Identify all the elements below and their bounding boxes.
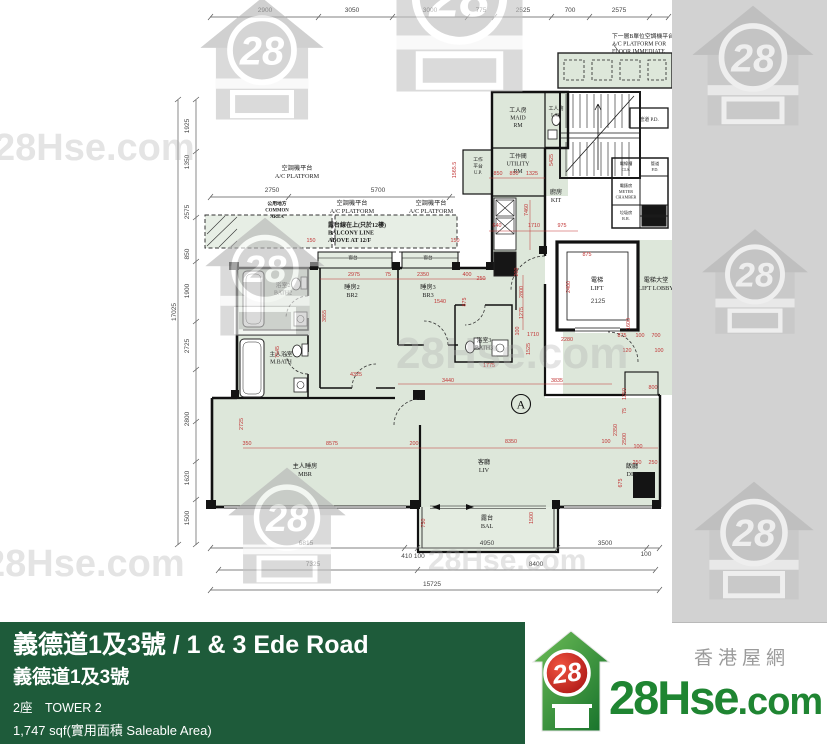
dimension-text: 800: [649, 385, 658, 391]
room-label: 電梯LIFT: [590, 276, 603, 292]
dimension-text: 1250: [622, 388, 628, 400]
brand-name-main: 28Hse: [609, 671, 738, 724]
floor-plan: 28: [0, 0, 827, 622]
dimension-text: 2400: [566, 281, 572, 293]
dimension-text: 7460: [524, 204, 530, 216]
dimension-text: 8575: [326, 441, 338, 447]
dimension-text: 875: [583, 252, 592, 258]
dimension-text: 5700: [371, 187, 386, 194]
brand-tagline: 香港屋網: [694, 643, 790, 670]
room-label: 窗台: [348, 254, 358, 261]
room-label: 客廳LIV: [478, 458, 490, 474]
dimension-text: 7545: [275, 346, 281, 358]
brand-name: 28Hse.com: [609, 670, 822, 725]
dimension-text: 3855: [322, 310, 328, 322]
room-label: 睡房2BR2: [344, 283, 359, 299]
dimension-text: 675: [618, 479, 624, 488]
dimension-text: 1620: [184, 470, 191, 485]
dimension-text: 100: [636, 333, 645, 339]
dimension-text: 200: [410, 441, 419, 447]
property-info-banner: 義德道1及3號 / 1 & 3 Ede Road 義德道1及3號 2座 TOWE…: [0, 622, 525, 744]
dimension-text: 1540: [434, 299, 446, 305]
room-label: 管道 P.D.: [639, 116, 659, 123]
dimension-text: 150: [451, 238, 460, 244]
dimension-text: 2975: [348, 272, 360, 278]
dimension-text: 2725: [239, 418, 245, 430]
dimension-text: 1500: [529, 512, 535, 524]
dimension-text: 15725: [423, 581, 441, 588]
dimension-text: 250: [477, 276, 486, 282]
dimension-text: 2350: [417, 272, 429, 278]
dimension-text: 1565.5: [452, 162, 458, 179]
dimension-text: 1275: [519, 307, 525, 319]
dimension-text: 2575: [184, 204, 191, 219]
dimension-text: 2575: [612, 7, 627, 14]
dimension-text: 400: [463, 272, 472, 278]
dimension-text: 700: [565, 7, 576, 14]
dimension-text: 4325: [350, 372, 362, 378]
logo-28-number: 28: [550, 656, 584, 690]
dimension-text: 875: [462, 298, 468, 307]
dimension-text: 250: [633, 460, 642, 466]
dimension-text: 75: [385, 272, 391, 278]
property-subtitle: 義德道1及3號: [13, 662, 525, 689]
dimension-text: 2350: [613, 424, 619, 436]
room-label: 下一層B單位空調機平台A/C PLATFORM FORFLOOR IMMEDIA…: [612, 32, 674, 55]
watermark-text: 28Hse.com: [0, 543, 185, 585]
unit-mark-letter: A: [517, 398, 526, 412]
brand-name-tld: .com: [738, 681, 823, 723]
dimension-text: 8350: [505, 439, 517, 445]
dimension-text: 640: [493, 223, 502, 229]
dimension-text: 200: [514, 268, 520, 277]
dimension-text: 250: [649, 460, 658, 466]
dimension-text: 3050: [345, 7, 360, 14]
dimension-text: 350: [243, 441, 252, 447]
saleable-area-info: 1,747 sqf(實用面積 Saleable Area): [13, 720, 525, 739]
dimension-text: 1325: [526, 171, 538, 177]
dimension-text: 1500: [184, 510, 191, 525]
dimension-text: 75: [622, 408, 628, 414]
dimension-text: 850: [184, 248, 191, 259]
dimension-text: 975: [558, 223, 567, 229]
dimension-text: 100: [634, 444, 643, 450]
dimension-text: 410 100: [401, 553, 425, 560]
dimension-text: 2800: [519, 286, 525, 298]
dimension-text: 2500: [622, 433, 628, 445]
dimension-text: 3500: [598, 540, 613, 547]
dimension-text: 750: [421, 519, 427, 528]
dimension-text: 1710: [528, 223, 540, 229]
watermark-text: 28Hse.com: [396, 329, 628, 378]
dimension-text: 1900: [184, 283, 191, 298]
room-label: 廚房KIT: [550, 188, 562, 204]
room-label: 露台BAL: [481, 514, 494, 530]
watermark-text: 28Hse.com: [0, 127, 195, 169]
dimension-text: 2125: [591, 298, 606, 305]
dimension-text: 2800: [184, 411, 191, 426]
dimension-text: 3835: [551, 378, 563, 384]
divider: [672, 622, 827, 623]
dimension-text: 2725: [184, 338, 191, 353]
dimension-text: 100: [602, 439, 611, 445]
dimension-text: 100: [655, 348, 664, 354]
footer: 義德道1及3號 / 1 & 3 Ede Road 義德道1及3號 2座 TOWE…: [0, 622, 827, 744]
dimension-text: 150: [307, 238, 316, 244]
dimension-text: 2750: [265, 187, 280, 194]
tower-info: 2座 TOWER 2: [13, 697, 525, 716]
dimension-text: 850: [510, 171, 519, 177]
room-label: 睡房3BR3: [420, 283, 435, 299]
room-label: 窗台: [423, 254, 433, 261]
brand-area: 28 香港屋網 28Hse.com: [525, 622, 827, 744]
dimension-text: 5425: [549, 154, 555, 166]
watermark-text: 28Hse.com: [428, 544, 586, 577]
dimension-text: 700: [652, 333, 661, 339]
dimension-text: 3440: [442, 378, 454, 384]
dimension-text: 100: [641, 551, 652, 558]
dimension-text: 17025: [171, 303, 178, 321]
dimension-text: 850: [494, 171, 503, 177]
property-title: 義德道1及3號 / 1 & 3 Ede Road: [13, 630, 525, 660]
room-label: 工作平台U.P.: [473, 156, 483, 176]
28hse-logo: 28: [531, 628, 611, 738]
room-label: 主人浴室M.BATH: [269, 350, 292, 365]
floor-plan-scan: 28: [0, 0, 827, 622]
